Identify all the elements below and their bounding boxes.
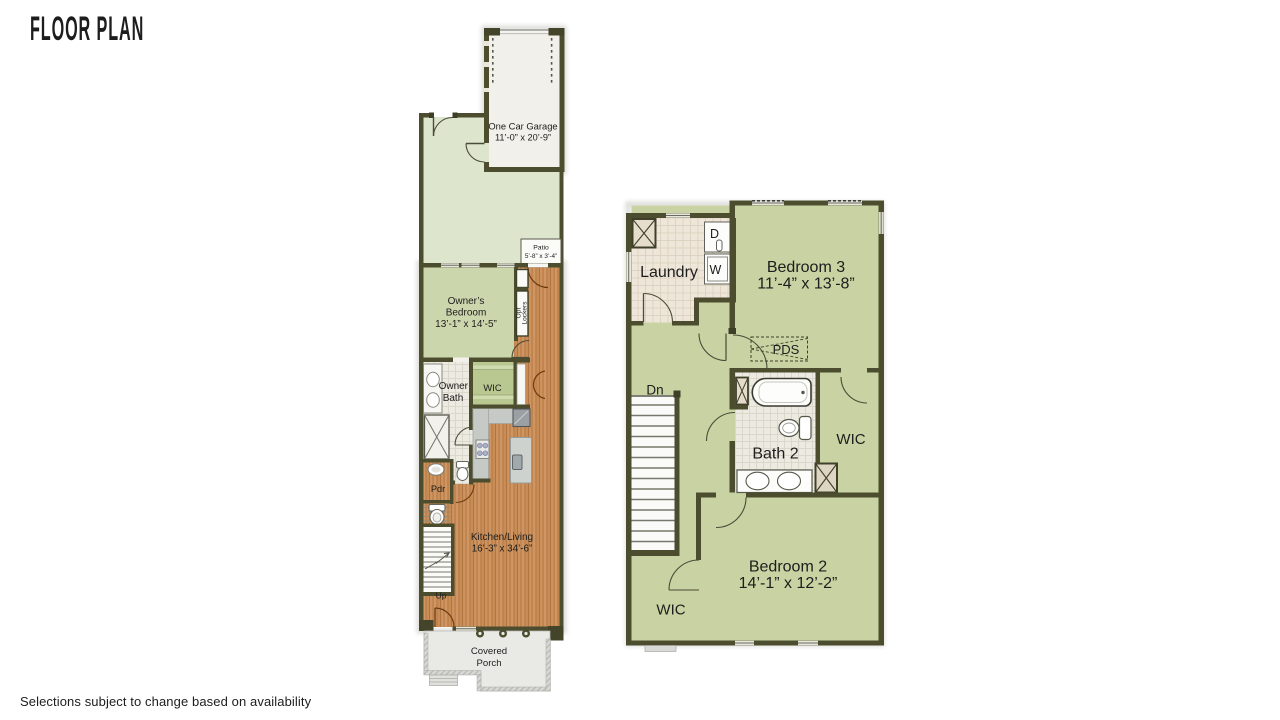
svg-text:Laundry: Laundry: [640, 264, 698, 281]
svg-text:Covered: Covered: [471, 646, 507, 657]
svg-text:Kitchen/Living: Kitchen/Living: [471, 532, 533, 543]
svg-text:Lockers: Lockers: [522, 301, 529, 325]
svg-text:WIC: WIC: [836, 431, 865, 448]
svg-text:Bedroom 3: Bedroom 3: [767, 259, 845, 276]
svg-text:WIC: WIC: [656, 602, 685, 619]
svg-text:PDS: PDS: [773, 342, 800, 357]
svg-text:Up: Up: [436, 591, 447, 601]
svg-text:Bath 2: Bath 2: [752, 446, 798, 463]
svg-text:13’-1” x 14’-5”: 13’-1” x 14’-5”: [435, 319, 497, 330]
svg-text:Bedroom: Bedroom: [446, 308, 487, 319]
svg-text:D: D: [710, 227, 719, 241]
svg-text:Pdr: Pdr: [431, 484, 445, 494]
svg-text:Bedroom 2: Bedroom 2: [749, 559, 827, 576]
svg-text:W: W: [710, 263, 722, 277]
svg-text:14’-1” x 12’-2”: 14’-1” x 12’-2”: [739, 575, 838, 592]
svg-text:Owner’s: Owner’s: [448, 296, 485, 307]
svg-text:Bath: Bath: [443, 393, 464, 404]
svg-text:FLOOR PLAN: FLOOR PLAN: [30, 9, 144, 47]
svg-text:Porch: Porch: [476, 658, 501, 669]
svg-text:Dn: Dn: [646, 383, 663, 398]
svg-text:16’-3” x 34’-6”: 16’-3” x 34’-6”: [472, 544, 532, 555]
svg-text:Selections subject to change b: Selections subject to change based on av…: [20, 694, 312, 709]
svg-text:5’-8” x 3’-4”: 5’-8” x 3’-4”: [525, 253, 557, 260]
svg-text:Patio: Patio: [533, 245, 549, 252]
svg-text:11’-4” x 13’-8”: 11’-4” x 13’-8”: [757, 276, 855, 293]
svg-text:WIC: WIC: [483, 382, 501, 393]
svg-text:One Car Garage: One Car Garage: [488, 121, 557, 132]
svg-text:11’-0” x 20’-9”: 11’-0” x 20’-9”: [495, 133, 551, 143]
